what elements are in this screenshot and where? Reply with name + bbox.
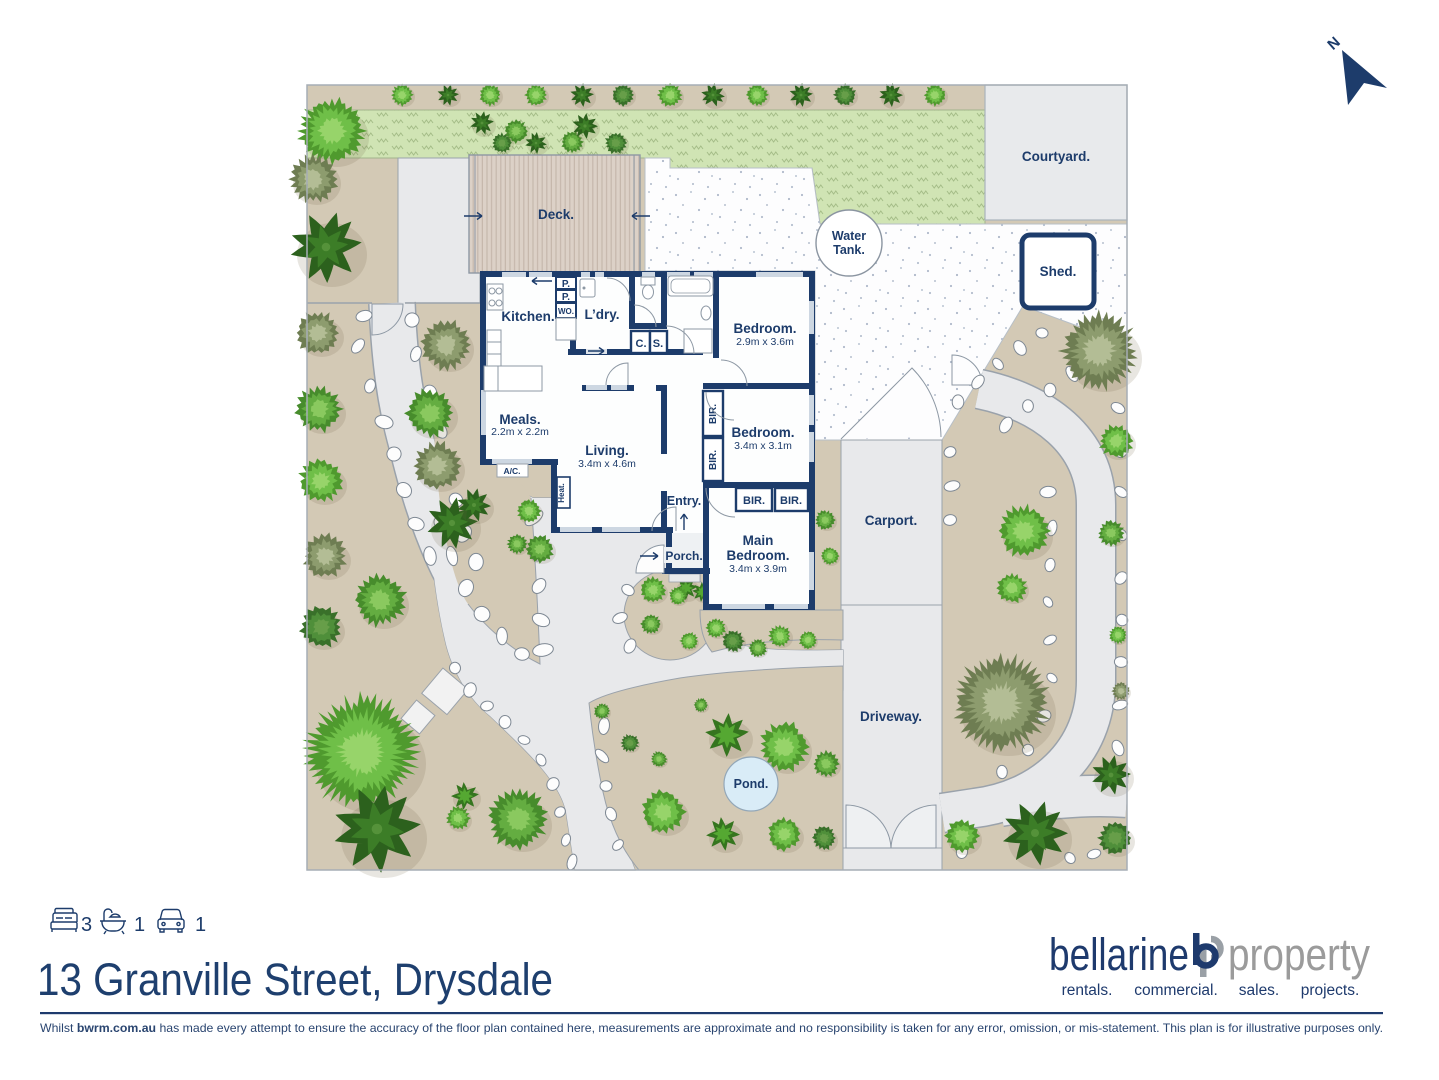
svg-text:bellarine: bellarine (1049, 929, 1189, 980)
svg-text:Whilst bwrm.com.au has made ev: Whilst bwrm.com.au has made every attemp… (40, 1021, 1383, 1035)
svg-text:Carport.: Carport. (865, 513, 918, 528)
svg-text:1: 1 (134, 914, 145, 936)
svg-text:Pond.: Pond. (734, 777, 769, 791)
svg-text:projects.: projects. (1301, 982, 1360, 999)
svg-text:Bedroom.: Bedroom. (731, 425, 794, 440)
svg-text:commercial.: commercial. (1134, 982, 1218, 999)
svg-text:Meals.: Meals. (499, 412, 540, 427)
svg-text:L’dry.: L’dry. (584, 307, 619, 322)
svg-text:Porch.: Porch. (665, 549, 702, 563)
svg-text:3: 3 (81, 914, 92, 936)
svg-text:BIR.: BIR. (743, 495, 765, 507)
svg-text:P.: P. (562, 292, 570, 303)
svg-text:2.9m x 3.6m: 2.9m x 3.6m (736, 336, 794, 348)
svg-text:BIR.: BIR. (780, 495, 802, 507)
svg-text:Bedroom.: Bedroom. (726, 548, 789, 563)
svg-text:Entry.: Entry. (667, 494, 702, 508)
svg-text:Main: Main (743, 533, 774, 548)
svg-text:Tank.: Tank. (833, 243, 865, 257)
svg-text:Shed.: Shed. (1040, 264, 1077, 279)
svg-text:S.: S. (653, 338, 663, 350)
svg-text:Living.: Living. (585, 443, 629, 458)
svg-text:1: 1 (195, 914, 206, 936)
svg-text:3.4m x 4.6m: 3.4m x 4.6m (578, 458, 636, 470)
svg-text:property: property (1228, 929, 1370, 980)
svg-text:WO.: WO. (558, 307, 574, 316)
svg-text:Deck.: Deck. (538, 207, 574, 222)
svg-text:sales.: sales. (1239, 982, 1280, 999)
svg-text:3.4m x 3.1m: 3.4m x 3.1m (734, 440, 792, 452)
svg-text:3.4m x 3.9m: 3.4m x 3.9m (729, 563, 787, 575)
svg-text:BIR.: BIR. (708, 450, 719, 470)
svg-text:2.2m x 2.2m: 2.2m x 2.2m (491, 426, 549, 438)
svg-text:Courtyard.: Courtyard. (1022, 149, 1090, 164)
svg-text:Kitchen.: Kitchen. (501, 309, 554, 324)
svg-text:A/C.: A/C. (504, 466, 521, 476)
svg-text:13 Granville Street, Drysdale: 13 Granville Street, Drysdale (37, 954, 553, 1005)
svg-text:P.: P. (562, 279, 570, 290)
svg-text:Driveway.: Driveway. (860, 709, 922, 724)
svg-text:Water: Water (832, 229, 866, 243)
svg-text:Heat.: Heat. (557, 483, 566, 503)
svg-text:C.: C. (636, 338, 647, 350)
svg-text:rentals.: rentals. (1062, 982, 1113, 999)
svg-text:Bedroom.: Bedroom. (733, 321, 796, 336)
